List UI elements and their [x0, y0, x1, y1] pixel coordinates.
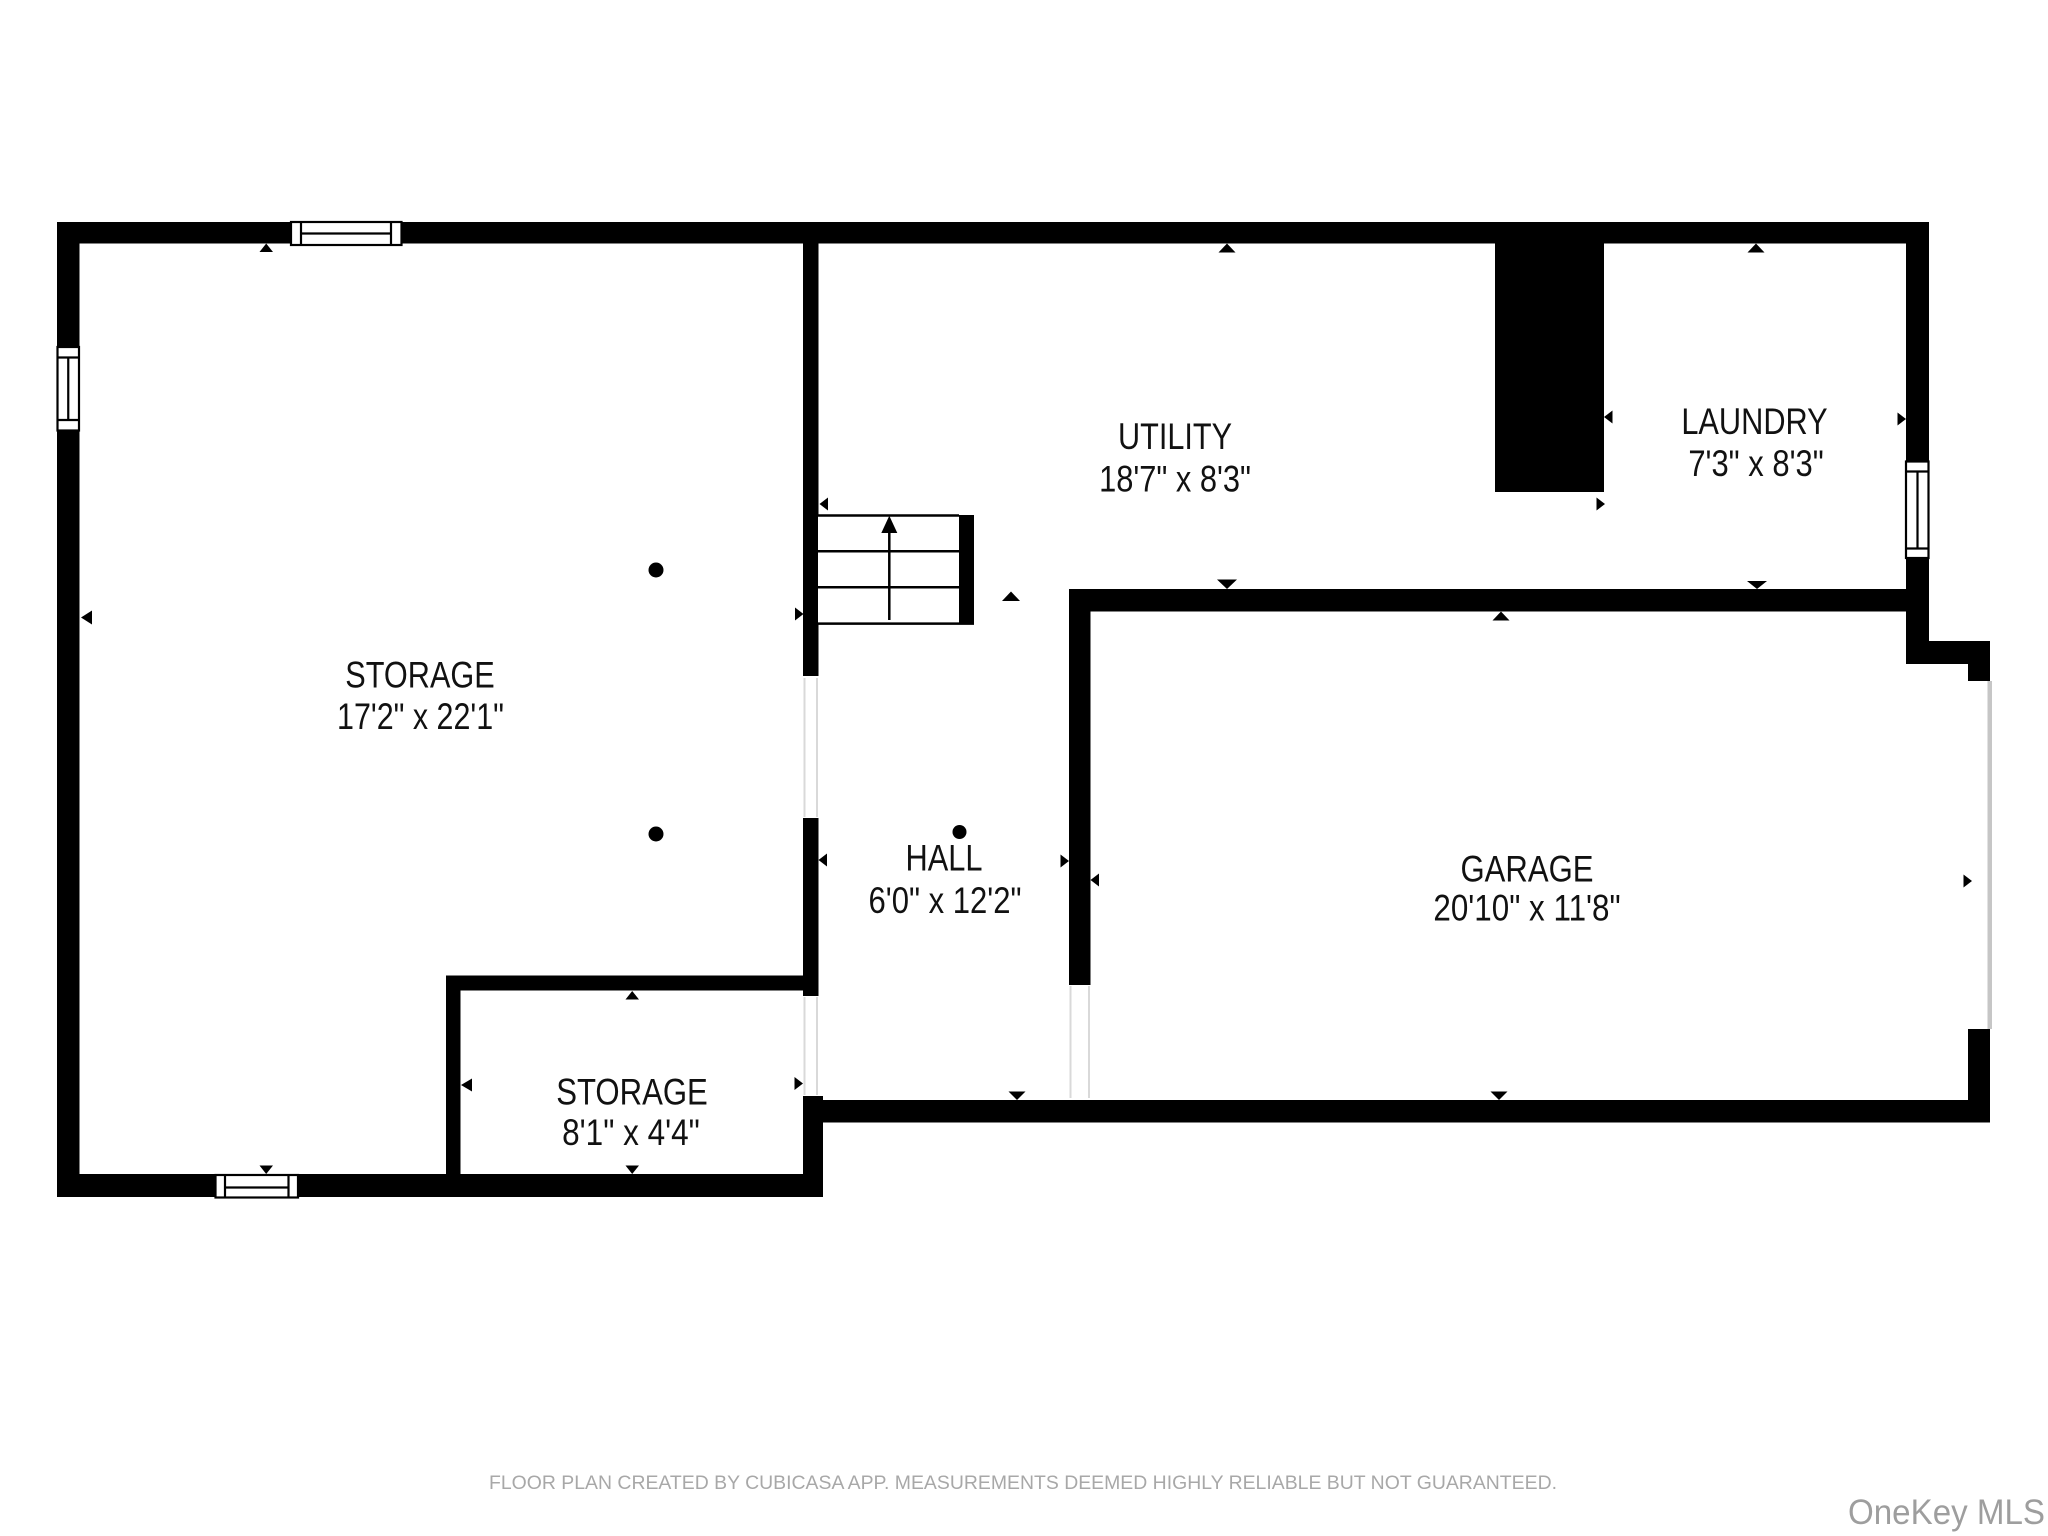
svg-text:18'7" x 8'3": 18'7" x 8'3": [1099, 459, 1251, 501]
svg-text:8'1" x 4'4": 8'1" x 4'4": [562, 1113, 700, 1154]
svg-text:HALL: HALL: [906, 838, 983, 880]
svg-text:20'10" x 11'8": 20'10" x 11'8": [1433, 888, 1620, 929]
svg-text:STORAGE: STORAGE: [556, 1072, 708, 1113]
svg-text:6'0" x 12'2": 6'0" x 12'2": [869, 880, 1022, 921]
svg-text:STORAGE: STORAGE: [345, 655, 494, 697]
svg-text:GARAGE: GARAGE: [1460, 849, 1593, 890]
svg-text:17'2" x 22'1": 17'2" x 22'1": [337, 696, 504, 738]
svg-text:OneKey MLS: OneKey MLS: [1848, 1493, 2045, 1532]
svg-text:UTILITY: UTILITY: [1118, 416, 1232, 458]
svg-text:FLOOR PLAN CREATED BY CUBICASA: FLOOR PLAN CREATED BY CUBICASA APP. MEAS…: [489, 1473, 1557, 1494]
svg-text:LAUNDRY: LAUNDRY: [1681, 401, 1827, 443]
svg-text:7'3" x 8'3": 7'3" x 8'3": [1688, 443, 1823, 484]
